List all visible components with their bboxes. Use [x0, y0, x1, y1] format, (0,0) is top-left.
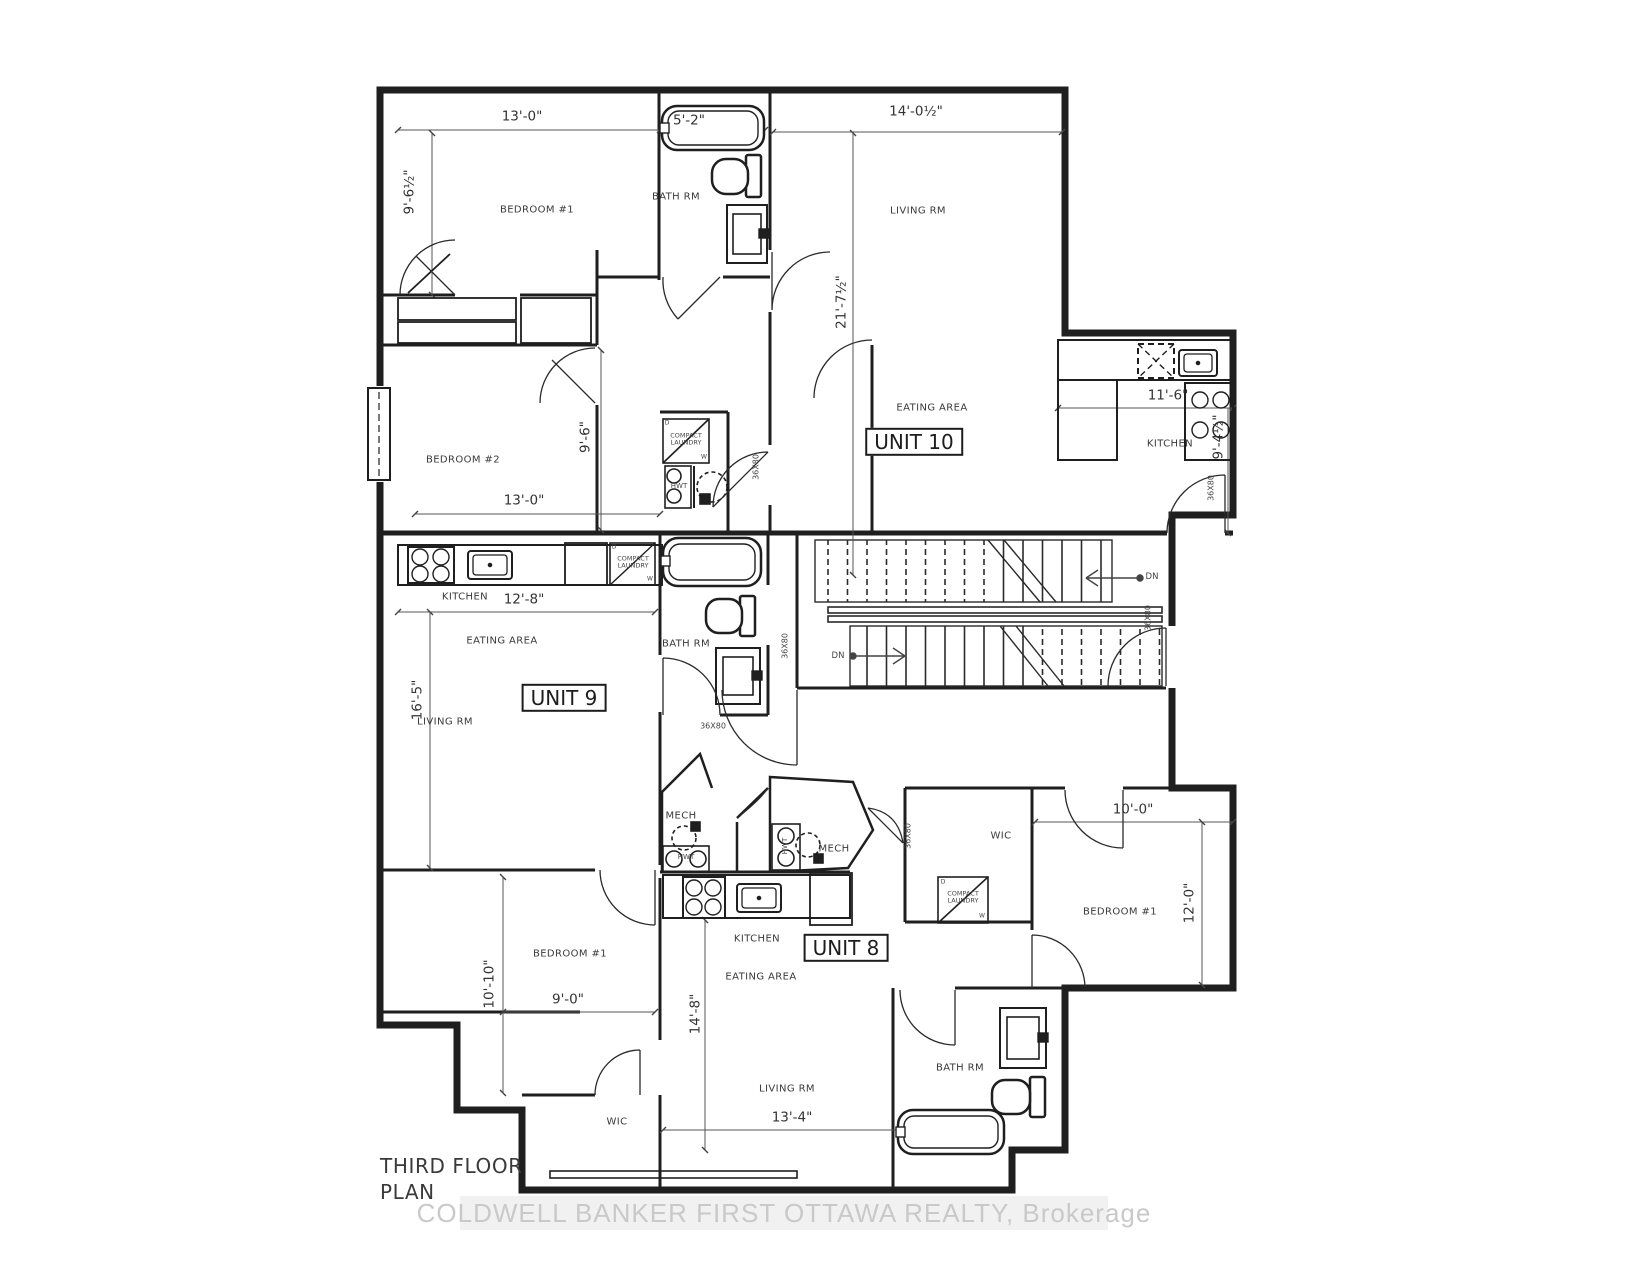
hwt-mech-left: HWT	[678, 854, 694, 862]
room-bathrm-u9: BATH RM	[662, 638, 710, 649]
room-eating-u8: EATING AREA	[725, 971, 796, 982]
door-36x80-bath9b: 36X80	[700, 723, 726, 732]
unit-9-label: UNIT 9	[522, 684, 607, 712]
laundry-u10-label: COMPACT LAUNDRY	[670, 433, 702, 448]
room-bathrm-top: BATH RM	[652, 191, 700, 202]
door-36x80-hall8: 36X80	[1145, 605, 1154, 631]
room-mech-right: MECH	[818, 843, 849, 854]
dim-10-0: 10'-0"	[1113, 802, 1154, 817]
dim-10-10: 10'-10"	[482, 959, 497, 1008]
hwt-mech-right: HWT	[782, 838, 790, 854]
unit-10-label: UNIT 10	[865, 428, 963, 456]
room-kitchen-u9: KITCHEN	[442, 591, 488, 602]
dim-13-4: 13'-4"	[772, 1110, 813, 1125]
dim-21-7half: 21'-7½"	[834, 275, 849, 329]
door-36x80-bath9r: 36X80	[782, 633, 791, 659]
room-bedroom1-right: BEDROOM #1	[1083, 906, 1157, 917]
watermark-band: COLDWELL BANKER FIRST OTTAWA REALTY, Bro…	[460, 1196, 1108, 1230]
room-livingrm-u10: LIVING RM	[890, 205, 946, 216]
laundry-u9-label: COMPACT LAUNDRY	[617, 556, 649, 571]
room-kitchen-u8: KITCHEN	[734, 933, 780, 944]
door-36x80-hall9: 36X80	[753, 454, 762, 480]
dim-16-5: 16'-5"	[410, 680, 425, 721]
room-kitchen-u10: KITCHEN	[1147, 438, 1193, 449]
room-wic-right: WIC	[990, 830, 1011, 841]
dim-12-8: 12'-8"	[504, 592, 545, 607]
hwt-u10-label: HWT	[671, 483, 687, 491]
room-livingrm-u8: LIVING RM	[759, 1083, 815, 1094]
dim-5-2-tub: 5'-2"	[673, 113, 705, 128]
door-36x80-wic8: 36X80	[905, 823, 914, 849]
room-mech-left: MECH	[665, 810, 696, 821]
laundry-u10-d: D	[665, 421, 670, 428]
dim-9-4half: 9'-4½"	[1211, 414, 1226, 459]
laundry-u9-d: D	[612, 545, 617, 552]
door-36x80-kit10: 36X80	[1208, 475, 1217, 501]
dim-12-0: 12'-0"	[1182, 883, 1197, 924]
laundry-u10-w: W	[701, 455, 707, 462]
unit-8-label: UNIT 8	[804, 934, 889, 962]
dim-9-6half-left: 9'-6½"	[402, 169, 417, 214]
laundry-u8-w: W	[979, 914, 985, 921]
stair-dn-lower: DN	[832, 652, 845, 662]
room-bedroom1-top: BEDROOM #1	[500, 204, 574, 215]
room-wic-left: WIC	[606, 1116, 627, 1127]
room-eating-u10: EATING AREA	[896, 402, 967, 413]
dim-13-0-bed2: 13'-0"	[504, 493, 545, 508]
dim-9-0: 9'-0"	[552, 992, 584, 1007]
floor-plan-page: 13'-0"5'-2"14'-0½"9'-6½"21'-7½"11'-6"9'-…	[0, 0, 1650, 1275]
room-eating-u9: EATING AREA	[466, 635, 537, 646]
room-bedroom1-left: BEDROOM #1	[533, 948, 607, 959]
watermark-text: COLDWELL BANKER FIRST OTTAWA REALTY, Bro…	[417, 1198, 1152, 1229]
room-livingrm-u9: LIVING RM	[417, 716, 473, 727]
plan-title-line1: THIRD FLOOR	[380, 1155, 523, 1177]
dim-9-6-bed2: 9'-6"	[578, 421, 593, 453]
dim-14-8: 14'-8"	[688, 994, 703, 1035]
room-bedroom2: BEDROOM #2	[426, 454, 500, 465]
laundry-u9-w: W	[647, 577, 653, 584]
dim-11-6: 11'-6"	[1148, 388, 1189, 403]
dim-14-0half-top: 14'-0½"	[889, 104, 943, 119]
laundry-u8-label: COMPACT LAUNDRY	[947, 891, 979, 906]
stair-dn-upper: DN	[1146, 573, 1159, 583]
room-bathrm-u8: BATH RM	[936, 1062, 984, 1073]
dim-13-0-top: 13'-0"	[502, 109, 543, 124]
laundry-u8-d: D	[941, 880, 946, 887]
labels-overlay: 13'-0"5'-2"14'-0½"9'-6½"21'-7½"11'-6"9'-…	[0, 0, 1650, 1275]
